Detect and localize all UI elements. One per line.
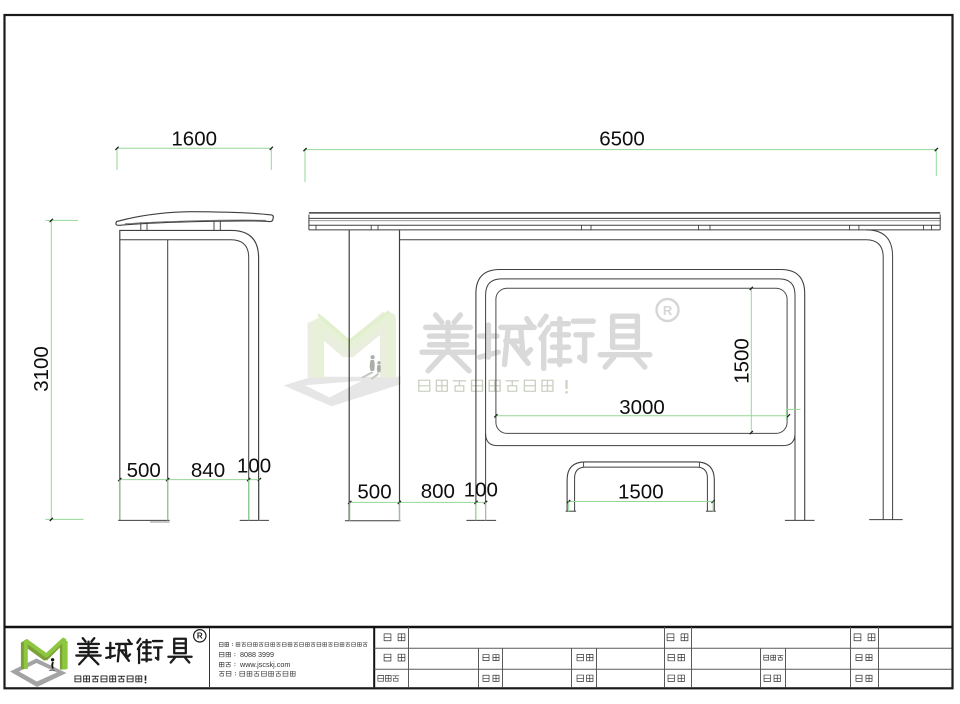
svg-text:100: 100: [464, 478, 498, 501]
svg-text:6500: 6500: [599, 127, 645, 150]
svg-text:8088 3999: 8088 3999: [240, 650, 274, 659]
svg-text:R: R: [197, 632, 203, 641]
svg-text:100: 100: [237, 454, 271, 477]
svg-text:1600: 1600: [171, 127, 217, 150]
svg-text:500: 500: [127, 459, 161, 482]
svg-text:500: 500: [357, 481, 391, 504]
svg-text:R: R: [663, 303, 673, 318]
svg-text:1500: 1500: [618, 480, 664, 503]
svg-text:3100: 3100: [30, 346, 53, 392]
svg-text:1500: 1500: [731, 338, 754, 384]
svg-text:840: 840: [191, 459, 225, 482]
svg-text:3000: 3000: [619, 396, 665, 419]
svg-text:www.jscskj.com: www.jscskj.com: [239, 660, 290, 669]
svg-text:800: 800: [421, 480, 455, 503]
